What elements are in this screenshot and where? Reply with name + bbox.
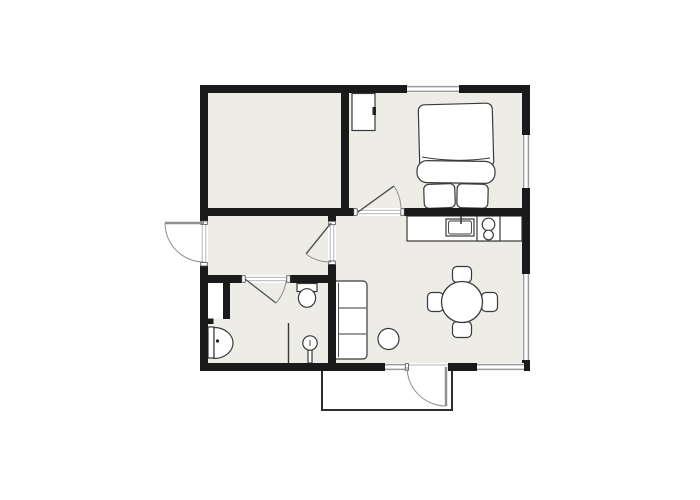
window-living-right xyxy=(522,274,530,360)
floor-plan: entrance-porch wardrobe-cabinet double-b… xyxy=(0,0,700,500)
sofa: three-seat-sofa xyxy=(332,281,367,359)
wardrobe: wardrobe-cabinet xyxy=(352,94,376,131)
floor-plan-canvas: entrance-porch wardrobe-cabinet double-b… xyxy=(0,0,700,500)
side-table: round-side-table xyxy=(378,329,399,350)
window-entrance-sidelight xyxy=(385,363,407,371)
window-bedroom-right xyxy=(522,135,530,188)
toilet: toilet xyxy=(297,284,317,308)
side-entrance-door xyxy=(165,221,208,266)
window-living-bottom xyxy=(477,363,524,371)
window-bedroom-top xyxy=(407,85,459,93)
stove: stove-two-burners xyxy=(477,216,500,241)
shaft-niche xyxy=(208,283,223,319)
dining-table: round-dining-table xyxy=(442,282,483,323)
